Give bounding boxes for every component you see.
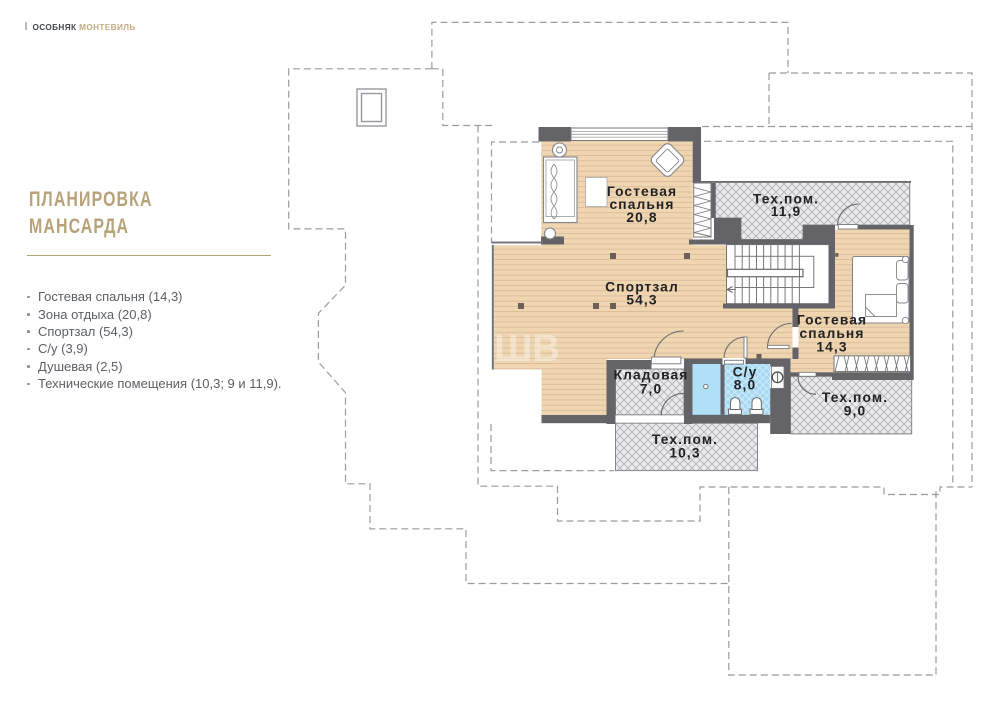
svg-text:7,0: 7,0 xyxy=(640,382,662,397)
svg-text:20,8: 20,8 xyxy=(626,210,657,225)
svg-text:14,3: 14,3 xyxy=(816,340,847,355)
svg-text:54,3: 54,3 xyxy=(626,292,657,307)
svg-text:10,3: 10,3 xyxy=(669,446,700,461)
svg-text:8,0: 8,0 xyxy=(734,378,756,393)
svg-text:9,0: 9,0 xyxy=(844,404,866,419)
svg-text:ШВ: ШВ xyxy=(494,328,560,370)
svg-text:Кладовая: Кладовая xyxy=(614,368,689,383)
svg-text:11,9: 11,9 xyxy=(771,204,802,219)
